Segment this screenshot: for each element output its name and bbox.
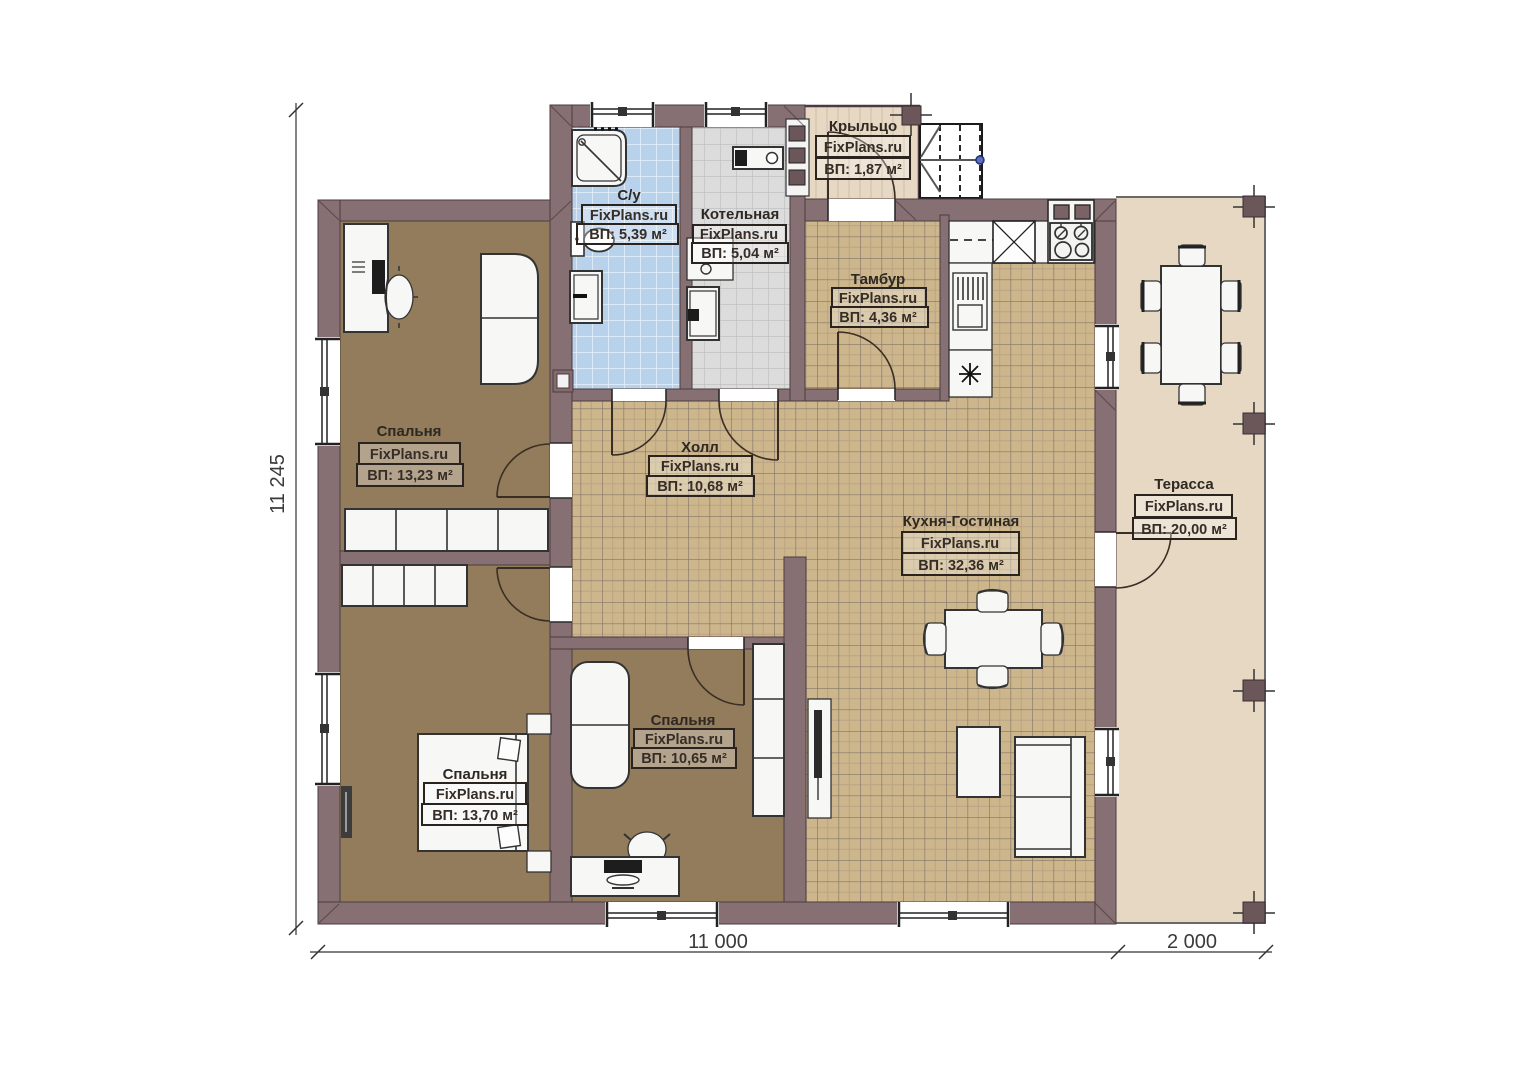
svg-text:FixPlans.ru: FixPlans.ru bbox=[645, 732, 723, 748]
svg-text:ВП: 32,36 м²: ВП: 32,36 м² bbox=[918, 558, 1004, 574]
svg-text:ВП: 10,65 м²: ВП: 10,65 м² bbox=[641, 751, 727, 767]
svg-text:Котельная: Котельная bbox=[701, 206, 780, 223]
svg-text:ВП: 5,39 м²: ВП: 5,39 м² bbox=[589, 227, 667, 243]
svg-text:FixPlans.ru: FixPlans.ru bbox=[661, 459, 739, 475]
svg-text:FixPlans.ru: FixPlans.ru bbox=[1145, 499, 1223, 515]
svg-text:FixPlans.ru: FixPlans.ru bbox=[370, 447, 448, 463]
svg-text:ВП: 20,00 м²: ВП: 20,00 м² bbox=[1141, 522, 1227, 538]
svg-text:11 000: 11 000 bbox=[688, 931, 748, 953]
svg-text:Спальня: Спальня bbox=[651, 712, 716, 729]
svg-text:Кухня-Гостиная: Кухня-Гостиная bbox=[903, 513, 1020, 530]
svg-text:11 245: 11 245 bbox=[267, 454, 289, 514]
svg-text:С/у: С/у bbox=[617, 187, 641, 204]
svg-text:FixPlans.ru: FixPlans.ru bbox=[839, 291, 917, 307]
svg-text:FixPlans.ru: FixPlans.ru bbox=[824, 140, 902, 156]
svg-text:FixPlans.ru: FixPlans.ru bbox=[921, 536, 999, 552]
svg-text:ВП: 13,70 м²: ВП: 13,70 м² bbox=[432, 808, 518, 824]
svg-text:FixPlans.ru: FixPlans.ru bbox=[436, 787, 514, 803]
svg-text:ВП: 13,23 м²: ВП: 13,23 м² bbox=[367, 468, 453, 484]
svg-text:FixPlans.ru: FixPlans.ru bbox=[700, 227, 778, 243]
svg-text:ВП: 5,04 м²: ВП: 5,04 м² bbox=[701, 246, 779, 262]
svg-text:Тамбур: Тамбур bbox=[851, 271, 905, 288]
svg-text:ВП: 10,68 м²: ВП: 10,68 м² bbox=[657, 479, 743, 495]
svg-text:ВП: 4,36 м²: ВП: 4,36 м² bbox=[839, 310, 917, 326]
svg-text:Терасса: Терасса bbox=[1154, 476, 1214, 493]
svg-text:FixPlans.ru: FixPlans.ru bbox=[590, 208, 668, 224]
svg-text:ВП: 1,87 м²: ВП: 1,87 м² bbox=[824, 162, 902, 178]
svg-text:Спальня: Спальня bbox=[443, 766, 508, 783]
svg-text:2 000: 2 000 bbox=[1167, 931, 1217, 953]
svg-text:Крыльцо: Крыльцо bbox=[829, 118, 897, 135]
svg-text:Холл: Холл bbox=[681, 439, 719, 456]
svg-text:Спальня: Спальня bbox=[377, 423, 442, 440]
